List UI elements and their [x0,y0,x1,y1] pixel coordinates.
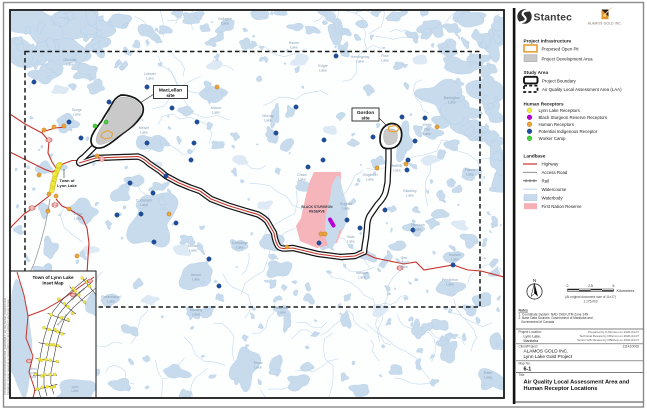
svg-text:First Nation Reserve: First Nation Reserve [542,204,583,209]
svg-text:Project Development Area: Project Development Area [542,57,594,62]
svg-text:Harrison: Harrison [411,223,425,227]
svg-text:(At original document size of: (At original document size of 11x17) [565,295,616,299]
svg-text:Melvin: Melvin [139,126,149,130]
svg-text:Waterbody: Waterbody [542,196,564,201]
svg-text:Chisel: Chisel [297,173,307,177]
svg-text:Landbase: Landbase [524,154,546,159]
svg-text:Lake: Lake [366,178,374,182]
svg-text:Town of Lynn Lake: Town of Lynn Lake [32,275,74,280]
svg-text:391: 391 [88,279,93,283]
svg-text:Lake: Lake [72,389,79,393]
svg-text:Highway: Highway [542,162,560,167]
svg-text:Lake: Lake [107,300,115,304]
svg-text:Hughes: Hughes [340,202,353,206]
svg-text:391: 391 [100,157,105,161]
svg-text:Botham: Botham [276,306,288,310]
svg-text:391: 391 [27,359,32,363]
svg-text:Bain: Bain [347,235,354,239]
svg-text:Stantec: Stantec [534,12,573,23]
svg-text:Lake: Lake [264,119,272,123]
svg-text:Lake: Lake [451,258,459,262]
svg-text:Worker Camp: Worker Camp [539,136,567,141]
svg-text:Lake: Lake [140,131,148,135]
svg-text:Proposed Open Pit: Proposed Open Pit [542,47,580,52]
svg-text:Lake: Lake [221,22,229,26]
svg-text:Map No.: Map No. [519,362,531,366]
svg-text:2.5: 2.5 [588,284,593,288]
svg-text:Lake: Lake [414,228,422,232]
svg-text:White: White [422,123,431,127]
svg-text:Government of Canada: Government of Canada [521,320,554,324]
svg-text:Victor: Victor [73,212,83,216]
svg-text:Lynn Lake: Lynn Lake [57,183,77,188]
svg-text:Lake: Lake [146,77,154,81]
svg-text:Study Area: Study Area [524,70,549,75]
svg-text:Lake: Lake [406,194,414,198]
svg-text:Lake: Lake [347,240,355,244]
svg-text:Senior GIS Review by CBishop o: Senior GIS Review by CBishop on 2020-04-… [577,338,639,342]
svg-text:111410006: 111410006 [623,344,640,348]
svg-text:Rail: Rail [542,178,550,183]
svg-text:Lake: Lake [484,376,492,380]
svg-text:Lake: Lake [73,113,81,117]
svg-text:391: 391 [53,203,58,207]
svg-text:Barrington: Barrington [444,96,461,100]
svg-text:Lake: Lake [254,366,262,370]
svg-text:Lake: Lake [466,173,474,177]
svg-text:Anson: Anson [191,273,201,277]
svg-text:Lake: Lake [66,63,74,67]
svg-text:site: site [361,115,370,121]
svg-text:Lake: Lake [356,60,364,64]
svg-text:Rice: Rice [381,54,388,58]
svg-text:1:175,000: 1:175,000 [583,299,597,303]
svg-text:6-1: 6-1 [524,366,532,372]
svg-text:Manitoba: Manitoba [524,339,539,343]
svg-text:391: 391 [30,206,35,210]
svg-text:Moose: Moose [188,244,199,248]
svg-text:Fraser: Fraser [465,168,476,172]
svg-text:RESERVE: RESERVE [309,210,325,214]
svg-text:Hudson: Hudson [449,253,461,257]
svg-text:Lake: Lake [74,217,82,221]
svg-text:Gellaghe: Gellaghe [218,17,232,21]
svg-text:ALAMOS GOLD INC.: ALAMOS GOLD INC. [524,349,569,354]
svg-text:Island: Island [399,261,409,265]
svg-text:Disclaimer: Stantec assumes no: Disclaimer: Stantec assumes no responsib… [6,299,10,395]
svg-text:Gilchrist: Gilchrist [64,58,77,62]
svg-text:Hemingway: Hemingway [351,55,370,59]
svg-text:Lobster: Lobster [144,72,157,76]
svg-text:Lake: Lake [212,111,220,115]
svg-text:Lake: Lake [319,69,327,73]
svg-text:MacLellan: MacLellan [159,87,182,93]
svg-text:Burge: Burge [72,108,82,112]
svg-text:391: 391 [47,138,52,142]
svg-text:Edgie: Edgie [318,64,327,68]
svg-text:Swede: Swede [392,164,403,168]
svg-text:Lake: Lake [192,278,200,282]
svg-text:Eden: Eden [484,371,492,375]
svg-text:Inset Map: Inset Map [42,281,63,286]
svg-text:Potential Indigenous Receptor: Potential Indigenous Receptor [539,129,598,134]
svg-text:Weldon: Weldon [356,271,368,275]
svg-text:Blackley: Blackley [403,189,417,193]
svg-text:Lake: Lake [192,313,200,317]
svg-text:Snow: Snow [254,361,263,365]
svg-text:site: site [166,93,175,99]
svg-text:Lake: Lake [381,59,389,63]
svg-text:Lynn Lake Receptors: Lynn Lake Receptors [539,108,581,113]
svg-text:Lake: Lake [358,276,366,280]
svg-text:Air Quality Local Assessment A: Air Quality Local Assessment Area (LAA) [542,87,622,92]
svg-text:Lake: Lake [446,283,454,287]
svg-text:Arbour: Arbour [211,106,223,110]
svg-text:Lake: Lake [278,311,286,315]
svg-text:Pendleton: Pendleton [442,278,458,282]
svg-text:One: One [401,256,408,260]
svg-text:Project Infrastructure: Project Infrastructure [524,39,572,44]
svg-text:Kilometres: Kilometres [617,289,635,293]
svg-text:Project Location: Project Location [519,330,542,334]
svg-text:0: 0 [567,284,569,288]
svg-text:Human Receptor Locations: Human Receptor Locations [524,386,598,392]
svg-text:5: 5 [613,284,615,288]
svg-text:Lake: Lake [189,249,197,253]
svg-text:Cockeram: Cockeram [136,199,152,203]
svg-text:Singleton: Singleton [363,173,378,177]
svg-text:Rosenhaupt: Rosenhaupt [101,295,120,299]
svg-text:Connaugh: Connaugh [232,241,249,245]
svg-text:Lake: Lake [393,169,401,173]
svg-text:Lake: Lake [140,203,148,207]
svg-text:N: N [533,278,536,283]
svg-text:Lake: Lake [290,46,298,50]
svg-text:ALAMOS GOLD INC.: ALAMOS GOLD INC. [588,21,622,25]
svg-text:Lake: Lake [342,207,350,211]
svg-text:Murray: Murray [262,114,273,118]
svg-text:Human Receptors: Human Receptors [524,102,565,107]
svg-text:Black Sturgeon Reserve Recepto: Black Sturgeon Reserve Receptors [539,115,608,120]
svg-text:Lake: Lake [30,375,37,379]
svg-text:Lake: Lake [298,178,306,182]
svg-text:Lake: Lake [236,246,244,250]
svg-text:Lake: Lake [400,265,408,269]
svg-text:Access Road: Access Road [542,170,568,175]
svg-text:Watercourse: Watercourse [542,187,567,192]
svg-text:Lynn Lake Gold Project: Lynn Lake Gold Project [524,354,573,359]
svg-text:Project Boundary: Project Boundary [542,78,576,83]
svg-text:Raven: Raven [289,41,299,45]
svg-text:Air Quality Local Assessment A: Air Quality Local Assessment Area and [524,379,630,385]
svg-text:BLACK STURGEON: BLACK STURGEON [301,205,333,209]
svg-text:Lake: Lake [448,101,456,105]
svg-text:Dorothy: Dorothy [190,308,203,312]
svg-text:Gordon: Gordon [357,110,374,116]
svg-text:Human Receptors: Human Receptors [539,122,575,127]
svg-text:Owl: Owl [424,128,430,132]
svg-text:Title: Title [519,373,525,377]
svg-text:Lake: Lake [423,132,431,136]
